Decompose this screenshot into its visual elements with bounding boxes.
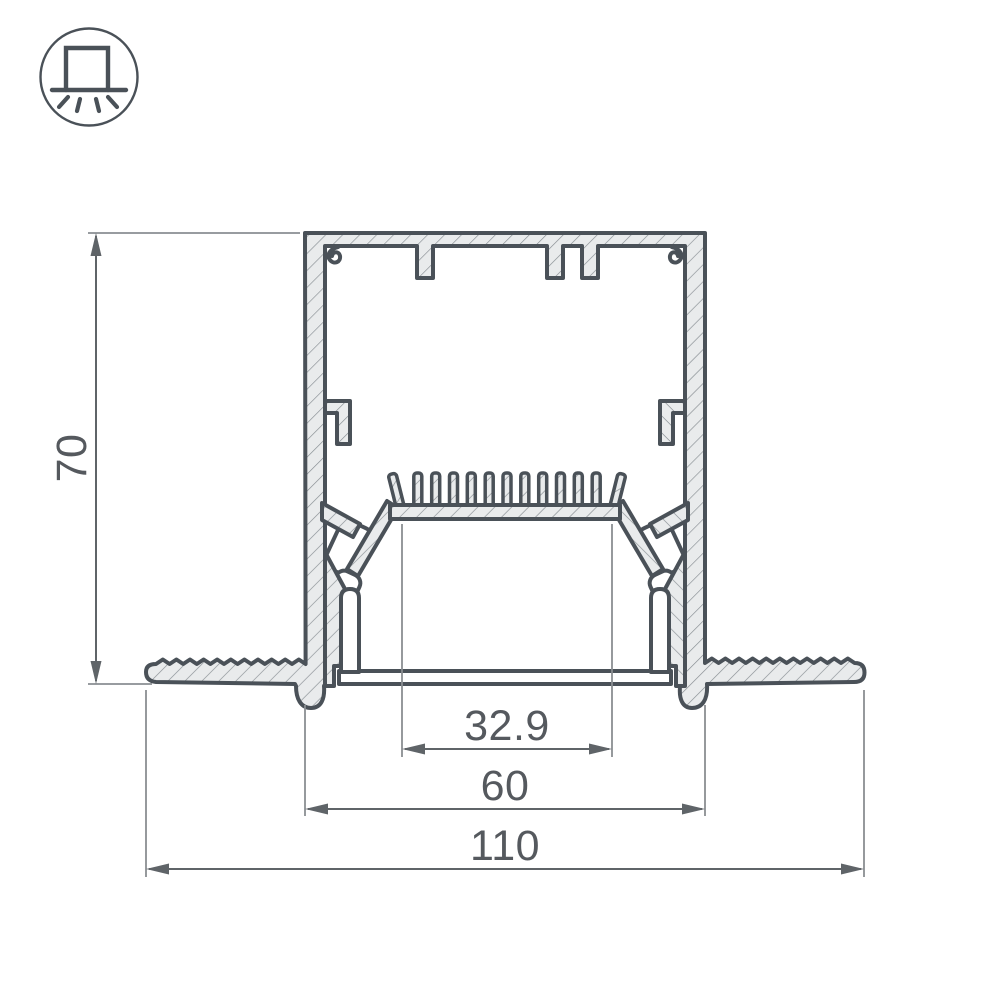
dim-inner-width-label: 32.9: [464, 702, 550, 750]
dimension-overall-width: 110: [146, 822, 864, 875]
dim-height-label: 70: [48, 434, 96, 483]
clip-bracket: [322, 503, 360, 537]
recessed-light-icon: [41, 29, 138, 126]
corner-curl: [328, 247, 340, 263]
wall-hook: [325, 401, 350, 444]
diffuser: [339, 671, 671, 684]
dimension-body-width: 60: [305, 762, 705, 815]
dimension-inner-width: 32.9: [402, 702, 612, 755]
icon-circle: [41, 29, 138, 126]
dimension-height: 70: [48, 233, 102, 684]
heatsink: [388, 473, 626, 519]
drawing-canvas: 70 32.9 60 110: [0, 0, 1000, 1000]
dim-overall-width-label: 110: [470, 822, 540, 870]
extension-lines: [88, 233, 864, 877]
dim-body-width-label: 60: [481, 762, 530, 810]
mounting-parts-right: [612, 247, 688, 686]
trim-hook: [341, 589, 359, 672]
heatsink-plate: [390, 505, 620, 519]
mounting-parts-left: [322, 247, 398, 686]
profile-drawing: 70 32.9 60 110: [0, 0, 1000, 1000]
profile-body: [146, 233, 865, 708]
